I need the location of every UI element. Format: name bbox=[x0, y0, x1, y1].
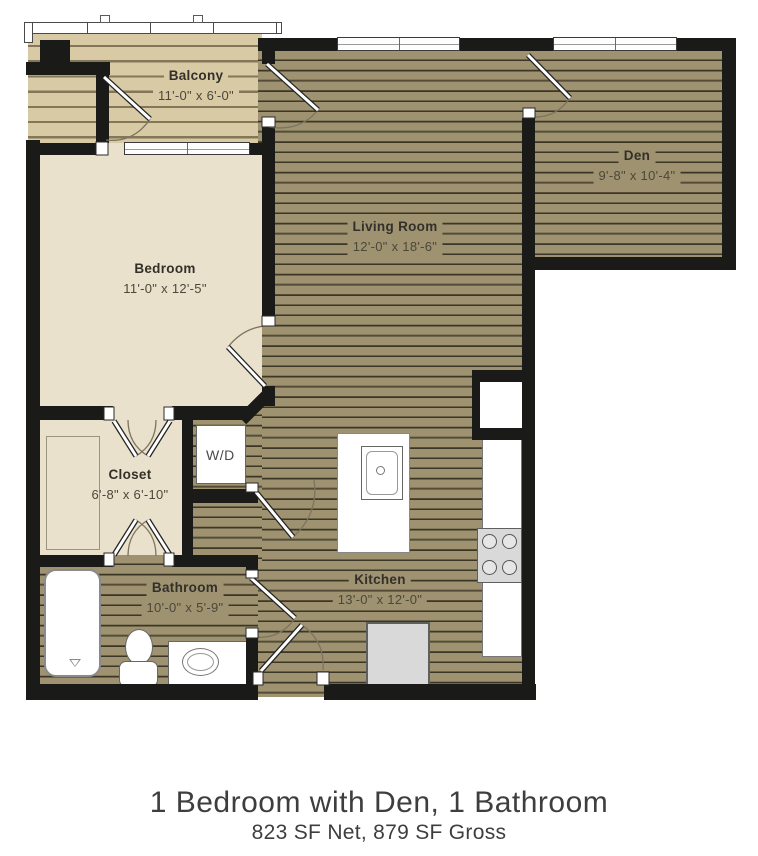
bedroom-label: Bedroom 11'-0" x 12'-5" bbox=[118, 259, 212, 299]
living-room-label: Living Room 12'-0" x 18'-6" bbox=[347, 217, 442, 257]
wall-balcony-stub bbox=[96, 75, 109, 143]
room-dims: 13'-0" x 12'-0" bbox=[333, 592, 427, 608]
wall-closet-top-a bbox=[26, 406, 113, 420]
pantry-box bbox=[472, 370, 535, 440]
balcony-label: Balcony 11'-0" x 6'-0" bbox=[153, 66, 239, 106]
plan-title: 1 Bedroom with Den, 1 Bathroom bbox=[0, 786, 758, 820]
room-name: Living Room bbox=[347, 219, 442, 236]
bedroom-window bbox=[124, 142, 250, 155]
wall-bathroom-top-a bbox=[26, 555, 113, 567]
room-dims: 12'-0" x 18'-6" bbox=[348, 239, 442, 255]
wall-left bbox=[26, 140, 40, 700]
room-name: Closet bbox=[103, 467, 156, 484]
den-label: Den 9'-8" x 10'-4" bbox=[594, 146, 681, 186]
room-name: Kitchen bbox=[349, 572, 411, 589]
stove-icon bbox=[477, 528, 522, 583]
balcony-railing bbox=[24, 22, 282, 34]
wall-bedroom-top-a bbox=[26, 143, 98, 155]
wall-bottom-right bbox=[324, 684, 536, 700]
wall-den-right bbox=[722, 38, 736, 270]
closet-label: Closet 6'-8" x 6'-10" bbox=[87, 465, 174, 505]
wall-den-divider bbox=[522, 118, 535, 257]
wall-bathroom-top-b bbox=[172, 555, 258, 567]
vanity-icon bbox=[168, 641, 247, 687]
kitchen-label: Kitchen 13'-0" x 12'-0" bbox=[333, 570, 427, 610]
room-dims: 6'-8" x 6'-10" bbox=[87, 487, 174, 503]
living-room-window bbox=[337, 37, 460, 51]
room-name: Bedroom bbox=[129, 261, 200, 278]
wall-laundry-bottom bbox=[182, 489, 258, 503]
wall-right bbox=[522, 257, 535, 697]
floor-plan: Balcony 11'-0" x 6'-0" Den 9'-8" x 10'-4… bbox=[0, 0, 758, 856]
wall-balcony-wing bbox=[26, 62, 110, 75]
room-dims: 10'-0" x 5'-9" bbox=[142, 600, 229, 616]
wall-lr-left-b bbox=[262, 126, 275, 325]
wall-bathroom-right-b bbox=[246, 637, 258, 684]
room-name: Den bbox=[619, 148, 655, 165]
room-dims: 11'-0" x 12'-5" bbox=[118, 281, 212, 297]
island-sink-icon bbox=[361, 446, 403, 500]
laundry-label: W/D bbox=[206, 447, 235, 463]
balcony-railing-left bbox=[24, 22, 33, 43]
wall-bathroom-right-a bbox=[246, 567, 258, 577]
bathroom-label: Bathroom 10'-0" x 5'-9" bbox=[142, 578, 229, 618]
den-window bbox=[553, 37, 677, 51]
room-name: Bathroom bbox=[147, 580, 223, 597]
room-name: Balcony bbox=[164, 68, 229, 85]
wall-closet-right bbox=[182, 406, 193, 567]
wall-bottom-left bbox=[26, 684, 258, 700]
wall-lr-left-a bbox=[262, 38, 275, 64]
wall-den-bottom bbox=[522, 257, 736, 270]
room-dims: 11'-0" x 6'-0" bbox=[153, 88, 239, 104]
bathtub-icon bbox=[44, 569, 101, 677]
plan-subtitle: 823 SF Net, 879 SF Gross bbox=[0, 821, 758, 845]
room-dims: 9'-8" x 10'-4" bbox=[594, 168, 681, 184]
railing-post-tick bbox=[100, 15, 110, 23]
toilet-bowl-icon bbox=[125, 629, 153, 665]
kitchen-island bbox=[337, 433, 410, 553]
railing-post-tick bbox=[193, 15, 203, 23]
